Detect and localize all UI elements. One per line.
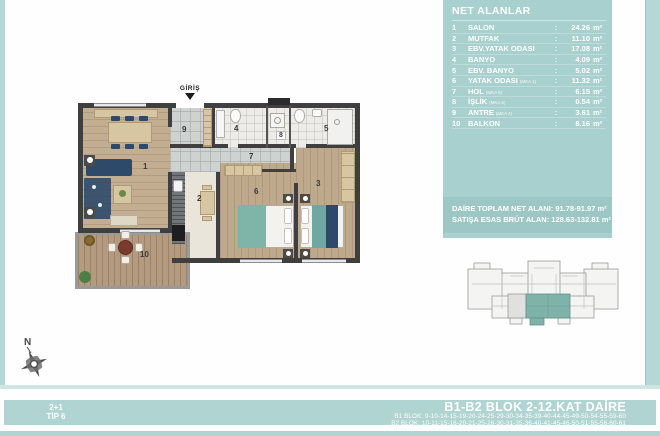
salon-window [94,103,146,107]
colon: : [552,66,560,75]
balcony-chair [121,231,130,239]
colon: : [552,76,560,85]
area-unit: m² [590,97,606,106]
room-name: EBV. BANYO [468,66,514,75]
dining-chair [111,116,120,121]
room-label-islik: 8 [276,131,286,140]
room-label-hol: 7 [249,152,253,161]
yatak-window [240,259,282,263]
room-label-yatak: 6 [254,187,258,196]
room-area-value: 4.09 [560,55,590,64]
brochure-page: GİRİŞ [0,0,660,436]
dining-table [108,122,152,143]
area-unit: m² [590,87,606,96]
colon: : [552,23,560,32]
area-summary: DAİRE TOPLAM NET ALANI: 91.78-91.97 m² S… [443,197,612,233]
footer-top-rule [0,385,660,389]
area-row: 1 SALON : 24.26 m² [452,23,606,34]
area-row: 6 YATAK ODASI(MKA 1) : 11.32 m² [452,76,606,87]
sink-icon [312,109,322,117]
rug-pattern [92,185,96,189]
building-key-plan [464,254,624,340]
pillow [284,208,292,224]
toilet-icon [294,109,305,123]
compass-rose-icon: N [12,334,56,382]
balcony-table [118,240,133,255]
right-edge-strip [645,0,660,385]
area-unit: m² [590,66,606,75]
ebv-yatak-window [302,259,346,263]
room-label-mutfak: 2 [197,194,201,203]
room-subscript: (MKA 5) [486,90,502,95]
room-area-value: 11.10 [560,34,590,43]
dining-chair [139,144,148,149]
area-row: 2 MUTFAK : 11.10 m² [452,34,606,45]
room-label-ebv-banyo: 5 [324,124,328,133]
tv-bench [110,215,138,226]
wall-salon-antre [168,105,172,127]
room-name: HOL [468,87,484,96]
area-row: 9 ANTRE(MKA 4) : 3.61 m² [452,108,606,119]
area-row: 7 HOL(MKA 5) : 6.15 m² [452,87,606,98]
room-name: MUTFAK [468,34,499,43]
shaft-block [268,98,290,105]
dining-chair [125,144,134,149]
area-row: 5 EBV. BANYO : 5.02 m² [452,65,606,76]
room-subscript: (MKA 4) [496,111,512,116]
nightstand [283,249,293,258]
room-name: BANYO [468,55,495,64]
room-number: 5 [452,66,468,75]
room-label-salon: 1 [143,162,147,171]
side-table [84,207,95,218]
colon: : [552,119,560,128]
entry-closet [203,109,212,147]
wall-antre-banyo [212,106,215,148]
area-unit: m² [590,55,606,64]
room-area-value: 17.08 [560,44,590,53]
entrance-arrow-icon [185,93,195,100]
area-row: 4 BANYO : 4.09 m² [452,55,606,66]
total-net-area: DAİRE TOPLAM NET ALANI: 91.78-91.97 m² [452,203,612,214]
wall-right [355,103,360,263]
footer-bottom-strip [0,431,660,436]
washer-drum [274,117,281,124]
wall-islik-ebvbanyo [289,106,291,148]
room-number: 4 [452,55,468,64]
toilet-icon [230,109,241,123]
wall-mutfak-yatak [216,172,220,258]
area-unit: m² [590,34,606,43]
room-label-balkon: 10 [140,250,149,259]
panel-title: NET ALANLAR [452,5,606,21]
nightstand [283,194,293,203]
colon: : [552,34,560,43]
room-number: 6 [452,76,468,85]
wall-hol-top-1 [170,144,228,148]
room-number: 1 [452,23,468,32]
kitchen-sink [173,180,183,192]
dining-chair [125,116,134,121]
wall-between-bedrooms [294,183,298,258]
b2-apartments: B2 BLOK: 10-11-15-16-20-21-25-26-30-31-3… [391,421,626,428]
colon: : [552,87,560,96]
area-unit: m² [590,108,606,117]
room-label-ebv-yatak: 3 [316,179,320,188]
unit-tip: TİP 6 [30,412,82,421]
wardrobe [341,151,355,203]
plant-pot-icon [84,235,95,246]
room-area-value: 6.15 [560,87,590,96]
room-number: 8 [452,97,468,106]
area-unit: m² [590,76,606,85]
area-unit: m² [590,44,606,53]
room-name: YATAK ODASI [468,76,518,85]
room-name: BALKON [468,119,500,128]
floor-plan: GİRİŞ [62,85,402,297]
bed-blanket [238,205,266,248]
bed-throw [326,205,338,248]
wall-hol-ebvyatak [290,148,294,172]
rug-pattern [98,203,102,207]
colon: : [552,55,560,64]
vanity [216,110,225,138]
room-subscript: (MKA 1) [520,79,536,84]
footer-bar: 2+1 TİP 6 B1-B2 BLOK 2-12.KAT DAİRE B1 B… [4,400,656,425]
area-row: 8 İŞLİK(MKA 6) : 0.54 m² [452,97,606,108]
closet [224,165,262,176]
kitchen-chair [202,185,212,190]
shower-drain [334,119,340,125]
stove [172,225,185,241]
area-unit: m² [590,23,606,32]
colon: : [552,97,560,106]
balcony-chair [121,256,130,264]
entrance-text: GİRİŞ [180,85,200,92]
plant-icon [79,271,91,283]
pillow [284,228,292,244]
dining-chair [139,116,148,121]
area-unit: m² [590,119,606,128]
gross-area: SATIŞA ESAS BRÜT ALAN: 128.63-132.81 m² [452,214,612,225]
nightstand [300,194,310,203]
shower [327,109,353,145]
area-row: 3 EBV.YATAK ODASI : 17.08 m² [452,44,606,55]
room-label-antre: 9 [182,125,186,134]
room-area-value: 0.54 [560,97,590,106]
wall-left [78,103,83,233]
entrance-label: GİRİŞ [170,85,210,100]
room-number: 10 [452,119,468,128]
room-name: ANTRE [468,108,494,117]
dining-chair [111,144,120,149]
room-label-banyo: 4 [234,124,238,133]
room-number: 9 [452,108,468,117]
area-panel: NET ALANLAR 1 SALON : 24.26 m² 2 MUTFAK … [443,0,612,238]
room-area-value: 24.26 [560,23,590,32]
room-number: 3 [452,44,468,53]
colon: : [552,44,560,53]
kitchen-table [200,191,215,215]
left-edge-strip [0,0,5,385]
bed-blanket [312,205,326,248]
room-number: 7 [452,87,468,96]
block-info: B1-B2 BLOK 2-12.KAT DAİRE B1 BLOK: 9-10-… [391,401,626,428]
unit-type: 2+1 [30,403,82,412]
room-name: SALON [468,23,494,32]
room-area-value: 3.61 [560,108,590,117]
side-table [84,155,95,166]
room-area-value: 11.32 [560,76,590,85]
room-area-value: 5.02 [560,66,590,75]
kitchen-chair [202,216,212,221]
pillow [301,228,309,244]
colon: : [552,108,560,117]
compass-north-letter: N [24,337,31,348]
area-list: 1 SALON : 24.26 m² 2 MUTFAK : 11.10 m² 3… [452,23,606,129]
nightstand [300,249,310,258]
area-row: 10 BALKON : 8.16 m² [452,118,606,129]
room-name: EBV.YATAK ODASI [468,44,535,53]
balcony-chair [108,243,116,252]
room-subscript: (MKA 6) [489,100,505,105]
wall-banyo-islik [266,106,268,148]
unit-type-block: 2+1 TİP 6 [30,403,82,421]
table-plant [119,190,126,197]
room-name: İŞLİK [468,97,487,106]
pillow [301,208,309,224]
room-area-value: 8.16 [560,119,590,128]
room-number: 2 [452,34,468,43]
